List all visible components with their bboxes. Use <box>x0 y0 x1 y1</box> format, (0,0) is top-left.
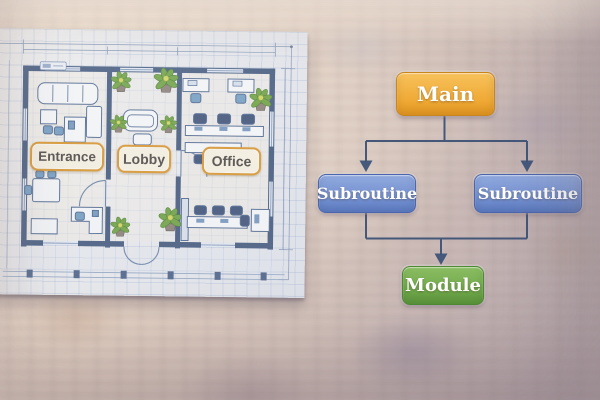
flowchart-node-main: Main <box>396 72 495 116</box>
flowchart-node-module: Module <box>402 266 484 305</box>
flowchart-node-subroutine-left-label: Subroutine <box>317 184 417 203</box>
flowchart-node-module-label: Module <box>405 275 481 296</box>
scene: Entrance Lobby Office Main Subrouti <box>0 0 600 400</box>
flowchart-node-subroutine-right: Subroutine <box>474 174 582 213</box>
flowchart-node-subroutine-right-label: Subroutine <box>478 184 578 203</box>
flowchart-node-main-label: Main <box>417 82 474 106</box>
arrow-down-icon <box>360 161 373 173</box>
arrow-down-icon <box>435 254 448 266</box>
arrow-down-icon <box>521 161 534 173</box>
flowchart-node-subroutine-left: Subroutine <box>318 174 416 213</box>
